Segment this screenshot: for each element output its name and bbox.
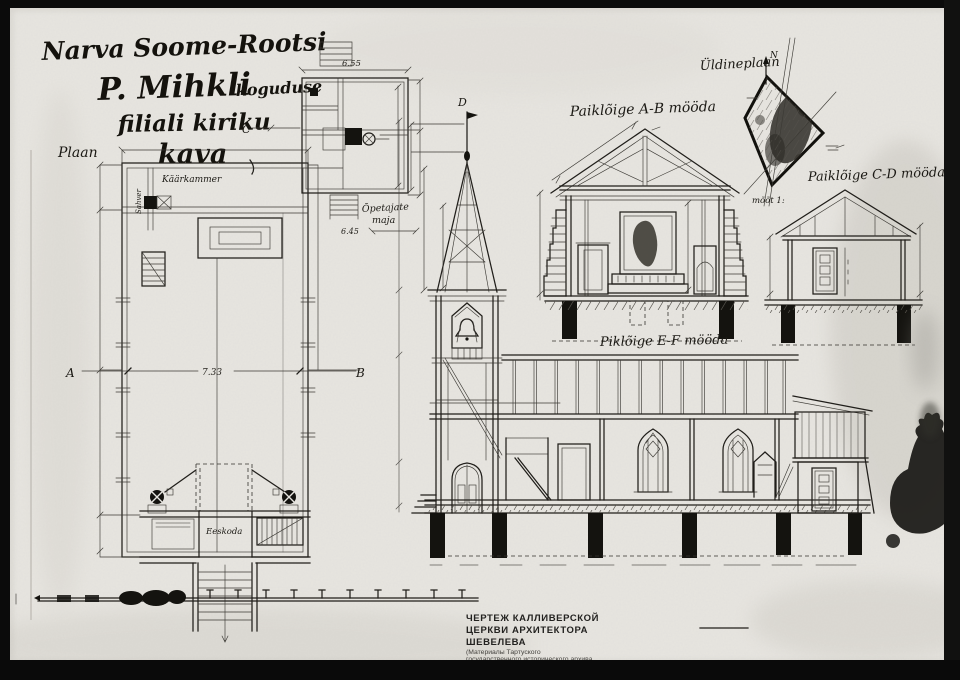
plan-dim-width: 7.33 [202, 368, 222, 378]
section-marker-a: A [65, 366, 75, 380]
drawing-canvas: Narva Soome-Rootsi P. Mihkli koguduse fi… [0, 0, 960, 680]
section-marker-d: D [457, 96, 467, 109]
stamp-line-2: ЦЕРКВИ АРХИТЕКТОРА [466, 625, 588, 636]
stamp-line-1: ЧЕРТЕЖ КАЛЛИВЕРСКОЙ [466, 612, 599, 624]
house-dim-top: 6.55 [342, 59, 361, 69]
room-label-pantry: Sahver [135, 188, 143, 214]
section-ef-label: Piklõige E-F mööda [599, 333, 729, 350]
house-label-2: maja [372, 215, 396, 226]
house-dim-bottom: 6.45 [341, 227, 359, 236]
north-marker: N [769, 51, 779, 61]
room-label-vestibule: Eeskoda [205, 527, 242, 537]
house-label-1: Õpetajate [362, 201, 410, 215]
stamp-line-4: (Материалы Тартуского [466, 649, 541, 656]
stamp-line-3: ШЕВЕЛЕВА [466, 637, 526, 648]
drawing-photo: Narva Soome-Rootsi P. Mihkli koguduse fi… [0, 0, 960, 680]
section-marker-b: B [355, 366, 365, 380]
title-line-2a: P. Mihkli [96, 67, 252, 108]
section-marker-c: C [242, 123, 251, 136]
room-label-sacristy: Käärkammer [161, 175, 222, 185]
title-line-4: kava [158, 139, 227, 170]
site-scale-note: mõõt 1: [752, 195, 785, 206]
plan-label: Plaan [57, 145, 98, 161]
